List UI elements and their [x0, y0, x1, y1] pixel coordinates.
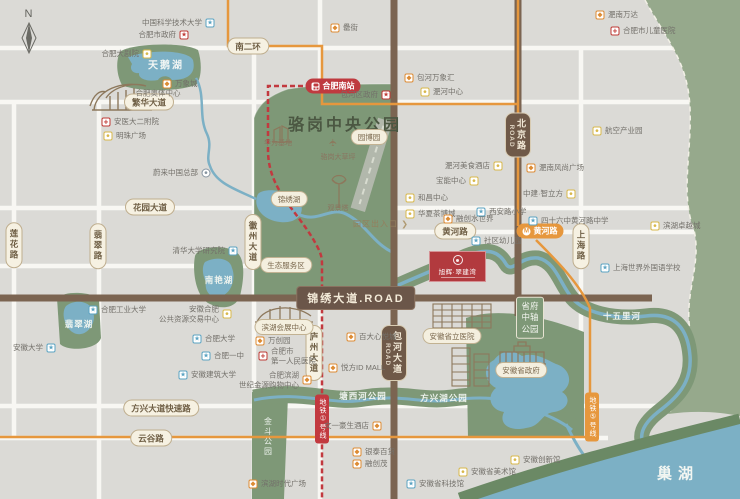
yungu-road-badge: 云谷路: [130, 430, 172, 447]
metro-line1-badge-badge: 地铁①号线: [315, 395, 329, 444]
poi-label: 宝能中心: [436, 176, 466, 186]
nanyan-lake-label: 南艳湖: [205, 274, 234, 286]
beijing-road-sub-label: ROAD: [508, 122, 515, 152]
metro-line1-badge-label: 地铁①号线: [319, 399, 326, 440]
lianhua-road-badge: 莲花路: [6, 222, 23, 268]
park-entrance-label: 园区出入口 ❯: [353, 219, 409, 230]
culture-icon: ●: [567, 190, 576, 199]
feicui-lake-label: 翡翠湖: [65, 318, 94, 330]
poi-label: 安徽创新馆: [523, 455, 561, 465]
poi-label-line-1: 安徽合肥: [159, 304, 219, 314]
poi-label: 合肥市儿童医院: [623, 26, 676, 36]
mall-icon: ◆: [347, 333, 356, 342]
exhibition-center-badge: 滨湖会展中心: [255, 319, 314, 335]
yungu-road-label: 云谷路: [138, 433, 164, 443]
poi-label: 社区幼儿园: [484, 236, 522, 246]
jindou-park-label: 金斗公园: [263, 417, 274, 457]
compass-needle-icon: [16, 20, 42, 56]
poi-label: 合肥市第一人民医院: [271, 346, 316, 366]
project-marker: 旭辉·翠建湾: [429, 251, 486, 282]
car-icon: ●: [202, 169, 211, 178]
jinxiu-lake-badge: 锦绣湖: [271, 191, 308, 207]
poi-label: 合肥大剧院: [102, 49, 140, 59]
huanghe-road-badge: 黄河路: [434, 223, 476, 240]
huayuan-avenue-label: 花园大道: [133, 202, 167, 212]
poi-label-line-1: 合肥滨湖: [239, 370, 299, 380]
hosp-icon: +: [611, 27, 620, 36]
huawei-base-label: 华为基地: [264, 138, 292, 148]
shanghai-road-label: 上海路: [576, 230, 586, 262]
poi-label: 明珠广场: [116, 131, 146, 141]
poi-label: 滨湖卓越城: [663, 221, 701, 231]
edu-icon: ★: [193, 335, 202, 344]
huanghe-road-label: 黄河路: [442, 226, 468, 236]
mall-icon: ◆: [329, 364, 338, 373]
huizhou-avenue-label: 徽州大道: [248, 221, 258, 263]
poi-label: 蔚来中国总部: [153, 168, 198, 178]
poi-label: 上海世界外国语学校: [613, 263, 681, 273]
poi-label: 中国科学技术大学: [142, 18, 202, 28]
mall-icon: ◆: [373, 422, 382, 431]
poi-label: 淝河中心: [433, 87, 463, 97]
poi-label: 融创茂: [365, 459, 388, 469]
park-entrance-text: 园区出入口: [353, 220, 398, 229]
swan-lake-label: 天鹅湖: [148, 57, 184, 72]
culture-icon: ●: [511, 456, 520, 465]
culture-icon: ●: [494, 162, 503, 171]
metro-line5-badge-badge: 地铁⑤号线: [585, 393, 599, 442]
poi-label: 安徽建筑大学: [191, 370, 236, 380]
edu-icon: ★: [202, 352, 211, 361]
runway-plane-icon: ✈: [329, 138, 340, 146]
mall-icon: ◆: [353, 460, 362, 469]
provincial-hospital-badge: 安徽省立医院: [423, 328, 482, 344]
lianhua-road-label: 莲花路: [9, 229, 19, 261]
gov-icon: ★: [382, 91, 391, 100]
fangxing-expressway-label: 方兴大道快速路: [131, 403, 191, 413]
huizhou-avenue-badge: 徽州大道: [245, 214, 262, 270]
edu-icon: ★: [601, 264, 610, 273]
poi-label: 百大心悦城: [359, 332, 397, 342]
hosp-icon: +: [102, 118, 111, 127]
beijing-road-badge: 北京路ROAD: [505, 113, 531, 158]
beijing-road-label: 北京路: [516, 119, 526, 152]
jinxiu-avenue-label: 锦绣大道.ROAD: [307, 293, 404, 305]
yuanboyuan-badge: 园博园: [351, 129, 388, 145]
poi-label: 滨湖时代广场: [261, 479, 306, 489]
poi-label: 航空产业园: [605, 126, 643, 136]
luogang-lawn-label: 骆岗大草坪: [321, 152, 356, 162]
compass: N: [14, 8, 44, 61]
poi-label: 清华大学研究院: [173, 246, 226, 256]
mall-icon: ◆: [331, 24, 340, 33]
culture-icon: ●: [104, 132, 113, 141]
viewing-tower-label: 观景塔: [328, 203, 349, 213]
fangxing-expressway-badge: 方兴大道快速路: [123, 400, 199, 417]
edu-icon: ★: [47, 344, 56, 353]
project-logo-icon: [453, 255, 463, 265]
edu-icon: ★: [472, 237, 481, 246]
mall-icon: ◆: [303, 376, 312, 385]
culture-icon: ●: [651, 222, 660, 231]
poi-label: 合肥一中: [214, 351, 244, 361]
poi-label: 四十六中黄河路中学: [541, 216, 609, 226]
poi-label: 安徽省美术馆: [471, 467, 516, 477]
poi-label: 万创园: [268, 336, 291, 346]
mall-icon: ◆: [249, 480, 258, 489]
chevron-right-icon: ❯: [401, 220, 409, 229]
fangxinghu-park-label: 方兴湖公园: [420, 392, 468, 404]
poi-label: 融创水世界: [456, 214, 494, 224]
eco-service-badge: 生态服务区: [260, 257, 312, 273]
shengfu-axis-park-label: 省府 中轴 公园: [516, 297, 544, 339]
poi-label-line-2: 公共资源交易中心: [159, 314, 219, 324]
mall-icon: ◆: [527, 164, 536, 173]
poi-label: 万象城: [175, 79, 198, 89]
poi-label: 包河区政府: [341, 90, 379, 100]
mall-icon: ◆: [596, 11, 605, 20]
culture-icon: ●: [593, 127, 602, 136]
fanhua-avenue-label: 繁华大道: [132, 97, 166, 107]
poi-label: 中建·智立方: [523, 189, 563, 199]
culture-icon: ●: [421, 88, 430, 97]
poi-label: 安医大二附院: [114, 117, 159, 127]
poi-label: 安徽合肥公共资源交易中心: [159, 304, 219, 324]
poi-label: 悦方ID MALL: [341, 363, 385, 373]
gov-icon: ★: [180, 31, 189, 40]
poi-label-line-2: 世纪金源购物中心: [239, 380, 299, 390]
poi-label-line-1: 合肥市: [271, 346, 316, 356]
poi-label-line-2: 第一人民医院: [271, 356, 316, 366]
tangxihe-park-label: 塘西河公园: [339, 390, 387, 402]
mall-icon: ◆: [353, 448, 362, 457]
edu-icon: ★: [206, 19, 215, 28]
poi-label: 合肥市政府: [139, 30, 177, 40]
provincial-gov-badge: 安徽省政府: [495, 362, 547, 378]
edu-icon: ★: [529, 217, 538, 226]
mall-icon: ◆: [444, 215, 453, 224]
poi-label: 安徽省科技馆: [419, 479, 464, 489]
poi-label: 和昌中心: [418, 193, 448, 203]
culture-icon: ●: [406, 194, 415, 203]
poi-label: 合肥滨湖世纪金源购物中心: [239, 370, 299, 390]
compass-north-label: N: [14, 8, 44, 20]
edu-icon: ★: [477, 208, 486, 217]
train-icon: [312, 82, 320, 90]
poi-label: 罍街: [343, 23, 358, 33]
location-map: { "compass": {"label": "N"}, "project": …: [0, 0, 740, 499]
poi-label: 银泰百货: [365, 447, 395, 457]
poi-label: 淝南万达: [608, 10, 638, 20]
station-label: 黄河路: [534, 226, 558, 237]
culture-icon: ●: [223, 310, 232, 319]
edu-icon: ★: [89, 306, 98, 315]
culture-icon: ●: [143, 50, 152, 59]
poi-label: 淝河美食酒店: [445, 161, 490, 171]
culture-icon: ●: [406, 210, 415, 219]
nan-er-huan-badge: 南二环: [227, 38, 269, 55]
culture-icon: ●: [459, 468, 468, 477]
mall-icon: ◆: [256, 337, 265, 346]
feicui-road-label: 翡翠路: [93, 230, 103, 262]
edu-icon: ★: [229, 247, 238, 256]
shiwuli-river-label: 十五里河: [603, 310, 641, 322]
poi-label: 淝南风尚广场: [539, 163, 584, 173]
edu-icon: ★: [407, 480, 416, 489]
mall-icon: ◆: [405, 74, 414, 83]
olympic-center-label: 合肥奥体中心: [136, 88, 181, 99]
hosp-icon: +: [259, 352, 268, 361]
shanghai-road-badge: 上海路: [573, 223, 590, 269]
huayuan-avenue-badge: 花园大道: [125, 199, 175, 216]
jinxiu-avenue-badge: 锦绣大道.ROAD: [296, 286, 415, 310]
poi-label: 西安路小学: [489, 207, 527, 217]
mall-icon: ◆: [163, 80, 172, 89]
poi-label: 包河万象汇: [417, 73, 455, 83]
chaohu-lake-label: 巢湖: [657, 463, 699, 484]
nan-er-huan-label: 南二环: [235, 41, 261, 51]
metro-line5-badge-label: 地铁⑤号线: [589, 397, 596, 438]
poi-label: 文一豪生酒店: [324, 421, 369, 431]
poi-label: 合肥工业大学: [101, 305, 146, 315]
edu-icon: ★: [179, 371, 188, 380]
feicui-road-badge: 翡翠路: [90, 223, 107, 269]
metro-icon: M: [523, 227, 531, 235]
culture-icon: ●: [470, 177, 479, 186]
project-divider: [441, 277, 475, 278]
poi-label: 合肥大学: [205, 334, 235, 344]
poi-label: 安徽大学: [13, 343, 43, 353]
project-name: 旭辉·翠建湾: [439, 266, 477, 276]
